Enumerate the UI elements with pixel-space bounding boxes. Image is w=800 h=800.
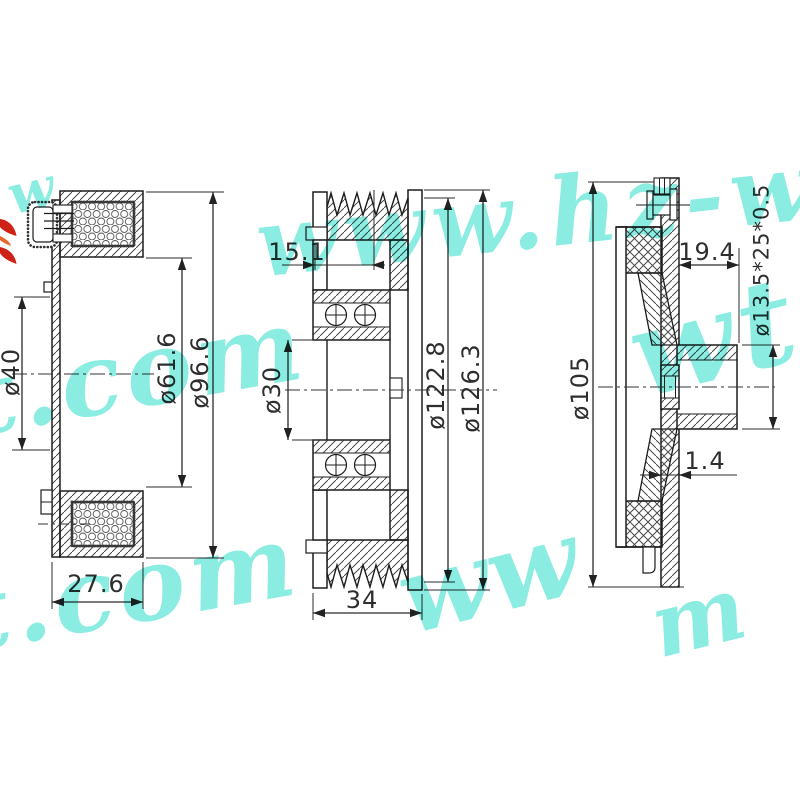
coil-wall-notch [44,282,52,292]
pulley-web-bottom [390,490,408,540]
plate-hook [643,547,655,573]
pulley-sleeve-bottom [313,490,327,540]
coil-side-view [12,191,224,609]
brand-logo-fragment [0,219,17,264]
bearing-bottom [313,440,390,490]
pulley-web-top [390,240,408,290]
pulley-grooves-top [327,193,408,240]
hub-armature-view [588,178,780,587]
coil-yoke-wall [52,200,60,557]
bolt-washer [670,189,677,220]
drawing-canvas: ø40 ø61.6 ø96.6 27.6 15.1 ø30 ø122.8 ø12… [0,0,800,800]
engineering-drawing [0,0,800,800]
pulley-flange-bottom [306,540,327,553]
pulley-section-view [282,190,497,620]
pulley-grooves-bottom [327,540,408,587]
snap-ring-groove [390,378,402,398]
bearing-top [313,290,390,340]
pulley-flange-top [306,227,327,240]
coil-winding-top [72,202,134,246]
hub-bolt [636,178,690,220]
